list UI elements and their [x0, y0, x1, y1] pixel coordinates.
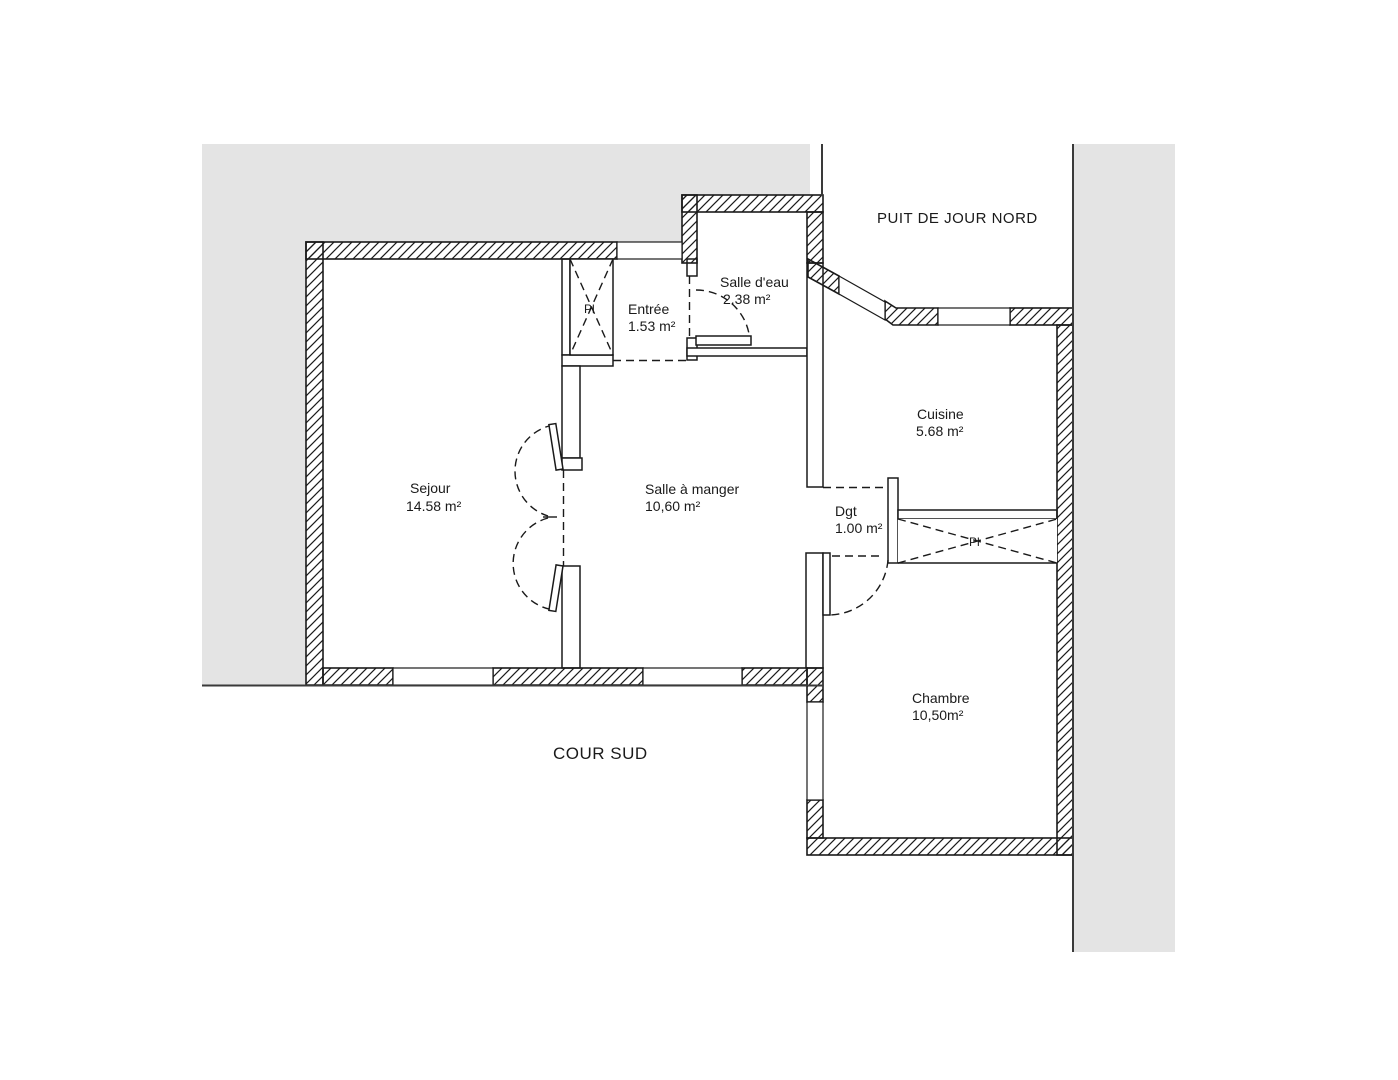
room-dgt-area: 1.00 m²: [835, 520, 883, 536]
dining-kitchen-wall: [807, 263, 823, 487]
west-wall: [306, 242, 323, 685]
diagonal-wall-lower: [885, 301, 938, 325]
closet-left-wall: [562, 259, 570, 355]
room-sejour-name: Sejour: [410, 480, 451, 496]
window-chambre-west: [807, 702, 823, 800]
window-entree-north: [617, 242, 682, 259]
room-cuisine-name: Cuisine: [917, 406, 964, 422]
kitchen-south-wall: [898, 510, 1057, 519]
window-sejour-south: [393, 668, 493, 685]
chambre-door-arc: [827, 560, 888, 615]
closet-entree-label: Pl: [584, 302, 595, 316]
room-cuisine-area: 5.68 m²: [916, 423, 964, 439]
room-chambre-area: 10,50m²: [912, 707, 964, 723]
room-entree-name: Entrée: [628, 301, 669, 317]
floor-plan-page: PUIT DE JOUR NORD COUR SUD Sejour 14.58 …: [0, 0, 1398, 1080]
room-entree-area: 1.53 m²: [628, 318, 676, 334]
room-salle-eau-name: Salle d'eau: [720, 274, 789, 290]
bathroom-west-wall: [682, 195, 697, 263]
south-area-label: COUR SUD: [553, 744, 648, 763]
chambre-south-wall: [807, 838, 1073, 855]
wall-under-closet: [562, 355, 613, 366]
chambre-door-leaf: [823, 553, 830, 615]
room-dgt-name: Dgt: [835, 503, 857, 519]
room-salle-a-manger-area: 10,60 m²: [645, 498, 701, 514]
north-wall: [306, 242, 617, 259]
sejour-divider-lower: [562, 566, 580, 668]
sejour-divider-upper: [562, 366, 580, 458]
north-area-label: PUIT DE JOUR NORD: [877, 210, 1038, 227]
room-salle-eau-area: 2.38 m²: [723, 291, 771, 307]
bathroom-door-leaf: [696, 336, 751, 345]
lightwell-north-grey-area: [1073, 144, 1175, 952]
room-chambre-name: Chambre: [912, 690, 970, 706]
south-wall-b: [493, 668, 643, 685]
kitchen-north-wall-east: [1010, 308, 1073, 325]
bathroom-north-wall: [682, 195, 823, 212]
floor-plan-drawing: PUIT DE JOUR NORD COUR SUD Sejour 14.58 …: [0, 0, 1398, 1080]
south-wall-c: [742, 668, 807, 685]
east-wall: [1057, 325, 1073, 855]
closet-chambre-label: Pl: [969, 535, 980, 549]
dining-chambre-wall: [806, 553, 823, 668]
dgt-kitchen-jamb: [888, 478, 898, 563]
south-wall-a: [323, 668, 393, 685]
bathroom-east-wall: [807, 212, 823, 263]
window-diagonal: [839, 276, 885, 320]
window-dining-south: [643, 668, 742, 685]
bathroom-south-wall: [687, 348, 807, 356]
sejour-door-jamb-upper: [562, 458, 582, 470]
room-sejour-area: 14.58 m²: [406, 498, 462, 514]
room-salle-a-manger-name: Salle à manger: [645, 481, 740, 497]
window-kitchen-north: [938, 308, 1010, 325]
chambre-west-wall-lower: [807, 800, 823, 838]
